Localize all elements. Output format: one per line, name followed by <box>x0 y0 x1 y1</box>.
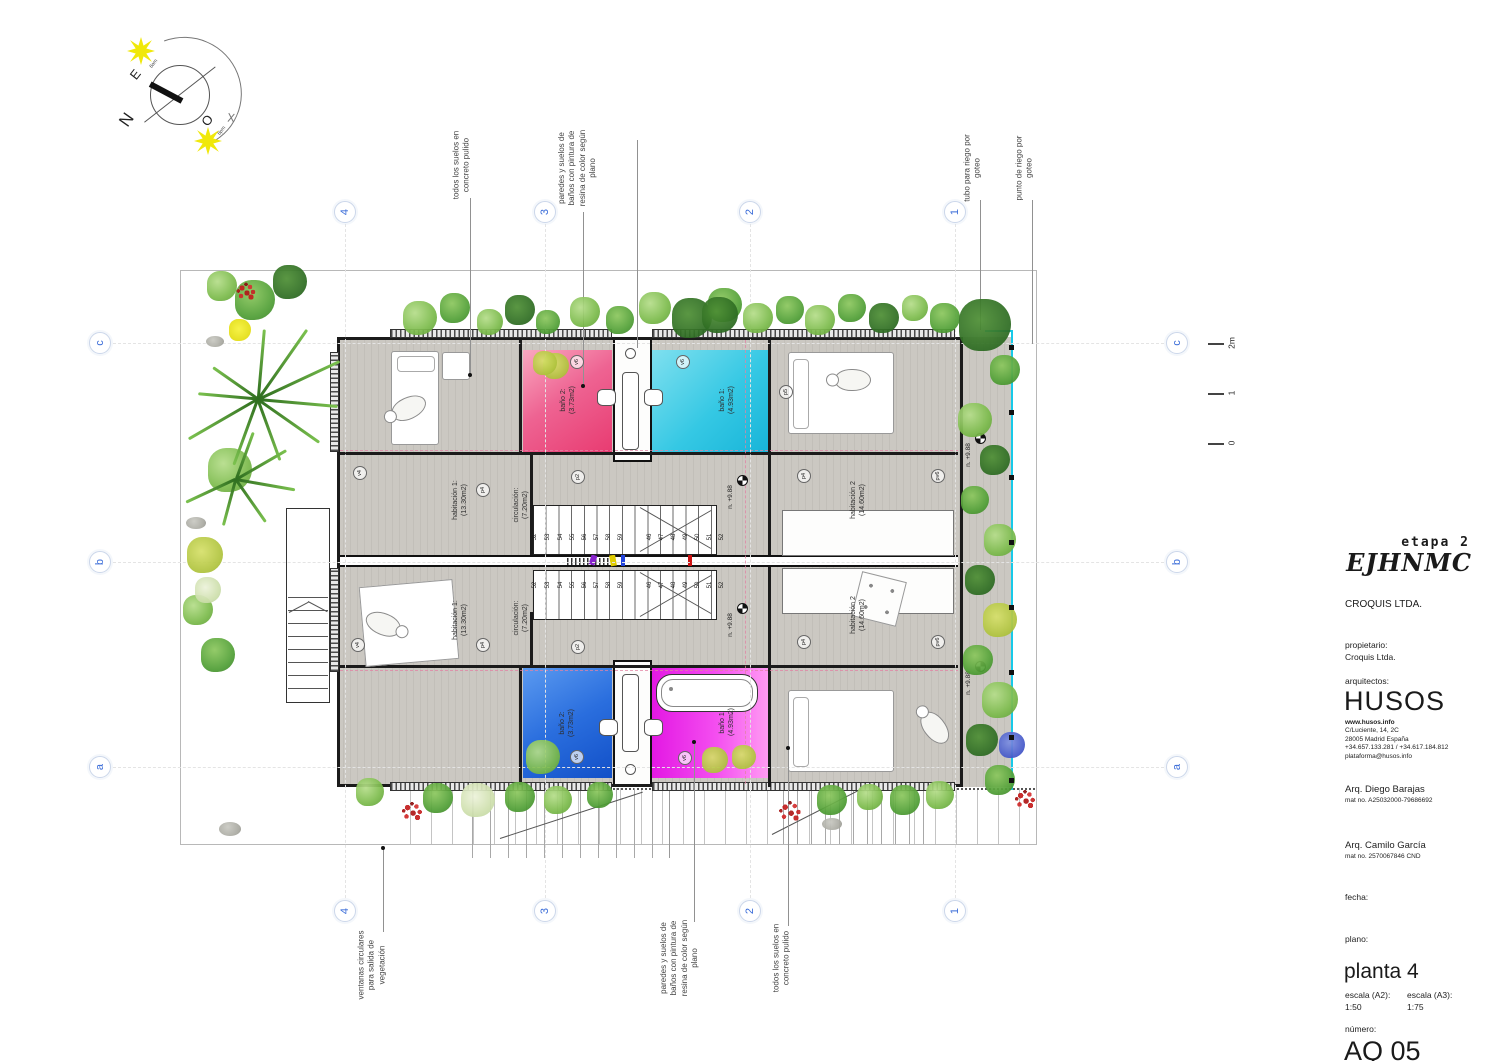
plant-g1-57 <box>926 781 954 809</box>
ref-tag-p5-4: p5 <box>779 385 793 399</box>
plant-g1-55 <box>857 784 883 810</box>
plant-g1-0 <box>403 301 437 335</box>
annotation-text-5: paredes y suelos de baños con pintura de… <box>659 920 701 997</box>
plant-g1-11 <box>743 303 773 333</box>
stair-number-1-59: 59 <box>618 582 626 589</box>
architect2-mat: mat no. 2570067846 CND <box>1345 853 1495 860</box>
stair-number-1-48: 48 <box>671 582 679 589</box>
stair-number-1-52: 52 <box>719 582 727 589</box>
annotation-leader-3-0 <box>1032 200 1033 344</box>
drip-point-5 <box>1009 670 1014 675</box>
ref-tag-v6-3: v6 <box>676 355 690 369</box>
plant-pk-41 <box>195 577 221 603</box>
stair-number-1-46: 46 <box>647 582 655 589</box>
drip-point-4 <box>1009 605 1014 610</box>
stair-number-0-59: 59 <box>618 534 626 541</box>
plant-g2-22 <box>961 486 989 514</box>
level-label-2: n. +9.88 <box>965 443 973 467</box>
number-label: número: <box>1345 1024 1495 1034</box>
scale-bar-label-0: 2m <box>1226 337 1237 349</box>
plant-g2-47 <box>505 782 535 812</box>
plant-g1-16 <box>902 295 928 321</box>
stair-number-0-58: 58 <box>606 534 614 541</box>
plant-g2-12 <box>776 296 804 324</box>
plant-yg-51 <box>702 747 728 773</box>
stair-number-1-47: 47 <box>659 582 667 589</box>
grid-bubble-b-left: b <box>89 551 111 573</box>
plant-g2-26 <box>963 645 993 675</box>
drip-point-6 <box>1009 735 1014 740</box>
plant-pk-46 <box>461 783 495 817</box>
stair-number-0-51: 51 <box>707 534 715 541</box>
scale-bar-label-2: 0 <box>1226 441 1237 446</box>
ref-tag-v6-14: v6 <box>678 751 692 765</box>
grid-bubble-c-right: c <box>1166 332 1188 354</box>
stair-number-0-47: 47 <box>659 534 667 541</box>
annotation-dot-0 <box>468 373 472 377</box>
stair-number-1-53: 53 <box>545 582 553 589</box>
plant-g2-56 <box>890 785 920 815</box>
plant-g3-3 <box>505 295 535 325</box>
architect2-name: Arq. Camilo García <box>1345 840 1495 851</box>
drip-point-0 <box>1009 345 1014 350</box>
scale-a3-value: 1:75 <box>1407 1002 1452 1012</box>
grid-bubble-b-right: b <box>1166 551 1188 573</box>
drip-point-2 <box>1009 475 1014 480</box>
room-label-8: habitación 2 (14.60m2) <box>849 481 867 519</box>
plant-yl-34 <box>229 319 251 341</box>
plant-g3-15 <box>869 303 899 333</box>
email[interactable]: plataforma@husos.info <box>1345 753 1495 760</box>
room-label-6: habitación 1: (13.30m2) <box>451 600 469 640</box>
stair-number-0-57: 57 <box>594 534 602 541</box>
ref-tag-v6-2: v6 <box>570 355 584 369</box>
stair-number-0-49: 49 <box>683 534 691 541</box>
plant-g2-1 <box>440 293 470 323</box>
stair-number-0-46: 46 <box>647 534 655 541</box>
scale-bar-mark-1 <box>1208 393 1224 395</box>
logo-text: EJHNMC <box>1330 548 1472 577</box>
plant-g1-49 <box>526 740 560 774</box>
plant-rd-60 <box>1014 789 1036 811</box>
ref-tag-v4-0: v4 <box>353 466 367 480</box>
plant-rd-44 <box>401 801 423 823</box>
ref-tag-p4-9: p4 <box>476 638 490 652</box>
grid-bubble-a-right: a <box>1166 756 1188 778</box>
stair-number-0-52: 52 <box>719 534 727 541</box>
owner-label: propietario: <box>1345 640 1495 650</box>
annotation-text-2: tubo para riego por goteo <box>963 134 984 202</box>
plant-g1-48 <box>544 786 572 814</box>
room-label-9: habitación 2 (14.60m2) <box>849 596 867 634</box>
grid-bubble-a-left: a <box>89 756 111 778</box>
room-label-0: baño 2: (3.73m2) <box>559 386 577 414</box>
grid-bubble-2-top: 2 <box>739 201 761 223</box>
scale-bar-mark-2 <box>1208 443 1224 445</box>
stair-number-0-53: 53 <box>545 534 553 541</box>
drip-point-7 <box>1009 778 1014 783</box>
ref-tag-pv6-12: pv6 <box>931 635 945 649</box>
plant-g2-4 <box>536 310 560 334</box>
plant-g1-43 <box>356 778 384 806</box>
plan-name: planta 4 <box>1344 960 1495 984</box>
stair-number-1-55: 55 <box>570 582 578 589</box>
plant-g3-32 <box>273 265 307 299</box>
plant-g2-45 <box>423 783 453 813</box>
plant-g2-14 <box>838 294 866 322</box>
level-marker-1 <box>737 603 748 614</box>
room-label-7: circulación: (7.20m2) <box>512 600 530 635</box>
grid-line-col-4 <box>345 224 346 898</box>
annotation-leader-0-0 <box>470 198 471 375</box>
annotation-leader-4-0 <box>383 848 384 932</box>
annotation-dot-6 <box>786 746 790 750</box>
grid-bubble-3-bottom: 3 <box>534 900 556 922</box>
scale-bar-label-1: 1 <box>1226 391 1237 396</box>
address-line1: C/Luciente, 14, 2C <box>1345 727 1495 734</box>
annotation-text-0: todos los suelos en concreto pulido <box>452 131 473 200</box>
plant-g1-13 <box>805 305 835 335</box>
ref-tag-v4-1: v4 <box>351 638 365 652</box>
plant-g1-33 <box>207 271 237 301</box>
phone: +34.657.133.281 / +34.617.184.812 <box>1345 744 1495 751</box>
grid-line-row-c <box>113 343 1164 344</box>
ref-tag-p4-7: p4 <box>797 469 811 483</box>
grid-bubble-3-top: 3 <box>534 201 556 223</box>
plant-g1-2 <box>477 309 503 335</box>
scale-a2-value: 1:50 <box>1345 1002 1407 1012</box>
scale-bar-mark-0 <box>1208 343 1224 345</box>
annotation-text-1: paredes y suelos de baños con pintura de… <box>557 130 599 207</box>
plant-st-58 <box>219 822 241 836</box>
plant-g1-6 <box>570 297 600 327</box>
title-block: etapa 2 EJHNMC CROQUIS LTDA. propietario… <box>1330 535 1495 1061</box>
plant-yg-52 <box>732 745 756 769</box>
grid-line-row-b <box>113 562 1164 563</box>
architects-name: HUSOS <box>1344 686 1495 717</box>
address-line2: 28005 Madrid España <box>1345 736 1495 743</box>
level-label-1: n. +9.88 <box>727 613 735 637</box>
plant-g2-40 <box>201 638 235 672</box>
floor-plan-sheet: N E O 6am 6pm <box>0 0 1500 1061</box>
grid-bubble-4-bottom: 4 <box>334 900 356 922</box>
room-label-3: baño 1: (4.93m2) <box>718 708 736 736</box>
stair-number-1-49: 49 <box>683 582 691 589</box>
plant-rd-53 <box>778 800 802 824</box>
room-label-5: circulación: (7.20m2) <box>512 487 530 522</box>
stair-number-1-58: 58 <box>606 582 614 589</box>
annotation-dot-1 <box>581 384 585 388</box>
stair-number-0-50: 50 <box>695 534 703 541</box>
ref-tag-p2-6: p2 <box>571 470 585 484</box>
room-label-2: baño 2: (3.73m2) <box>558 709 576 737</box>
website[interactable]: www.husos.info <box>1345 719 1495 726</box>
plant-g3-21 <box>980 445 1010 475</box>
plant-g1-8 <box>639 292 671 324</box>
architect1-name: Arq. Diego Barajas <box>1345 784 1495 795</box>
room-label-1: baño 1: (4.93m2) <box>718 386 736 414</box>
plant-g2-54 <box>817 785 847 815</box>
stair-number-0-52: 52 <box>532 534 540 541</box>
scale-a2-label: escala (A2): <box>1345 990 1407 1000</box>
plant-st-35 <box>206 336 224 347</box>
stair-number-1-54: 54 <box>558 582 566 589</box>
plan-label: plano: <box>1345 934 1495 944</box>
grid-bubble-1-top: 1 <box>944 201 966 223</box>
grid-bubble-1-bottom: 1 <box>944 900 966 922</box>
grid-bubble-4-top: 4 <box>334 201 356 223</box>
architect1-mat: mat no. A25032000-79686692 <box>1345 797 1495 804</box>
stair-number-1-52: 52 <box>532 582 540 589</box>
overlay-layer: 44332211ccbbaa2m10todos los suelos en co… <box>0 0 1500 1061</box>
plant-g2-19 <box>990 355 1020 385</box>
drip-point-3 <box>1009 540 1014 545</box>
plant-rd-36 <box>236 282 256 302</box>
grid-bubble-c-left: c <box>89 332 111 354</box>
annotation-leader-1-1 <box>637 140 638 348</box>
annotation-dot-5 <box>692 740 696 744</box>
plant-st-59 <box>822 818 842 830</box>
stair-number-1-51: 51 <box>707 582 715 589</box>
plant-g3-61 <box>702 297 738 333</box>
plant-g1-20 <box>958 403 992 437</box>
annotation-text-4: ventanas circulares para salida de veget… <box>356 931 387 1000</box>
plant-st-42 <box>186 517 206 529</box>
grid-bubble-2-bottom: 2 <box>739 900 761 922</box>
plant-g3-24 <box>965 565 995 595</box>
level-marker-0 <box>737 475 748 486</box>
ref-tag-v6-13: v6 <box>570 750 584 764</box>
plant-g2-50 <box>587 782 613 808</box>
stair-number-1-50: 50 <box>695 582 703 589</box>
stair-number-0-55: 55 <box>570 534 578 541</box>
ref-tag-p4-5: p4 <box>476 483 490 497</box>
scale-a3-label: escala (A3): <box>1407 990 1452 1000</box>
sheet-number: AQ 05 <box>1344 1036 1495 1061</box>
stair-number-0-54: 54 <box>558 534 566 541</box>
annotation-text-3: punto de riego por goteo <box>1015 136 1036 201</box>
stair-number-1-56: 56 <box>582 582 590 589</box>
stair-number-0-56: 56 <box>582 534 590 541</box>
drip-point-1 <box>1009 410 1014 415</box>
owner-name: Croquis Ltda. <box>1345 652 1495 662</box>
plant-g3-28 <box>966 724 998 756</box>
room-label-4: habitación 1: (13.30m2) <box>451 480 469 520</box>
stair-number-1-57: 57 <box>594 582 602 589</box>
date-label: fecha: <box>1345 892 1495 902</box>
ref-tag-pv6-8: pv6 <box>931 469 945 483</box>
annotation-dot-4 <box>381 846 385 850</box>
architects-label: arquitectos: <box>1345 676 1495 686</box>
palm-frond-1 <box>257 329 308 400</box>
plant-yg-38 <box>187 537 223 573</box>
ref-tag-p2-10: p2 <box>571 640 585 654</box>
annotation-leader-5-0 <box>694 742 695 922</box>
level-label-0: n. +9.88 <box>727 485 735 509</box>
annotation-leader-6-0 <box>788 748 789 926</box>
plant-g2-7 <box>606 306 634 334</box>
stair-number-0-48: 48 <box>671 534 679 541</box>
company-name: CROQUIS LTDA. <box>1345 599 1495 610</box>
annotation-text-6: todos los suelos en concreto pulido <box>772 924 793 993</box>
ref-tag-p4-11: p4 <box>797 635 811 649</box>
plant-g1-27 <box>982 682 1018 718</box>
